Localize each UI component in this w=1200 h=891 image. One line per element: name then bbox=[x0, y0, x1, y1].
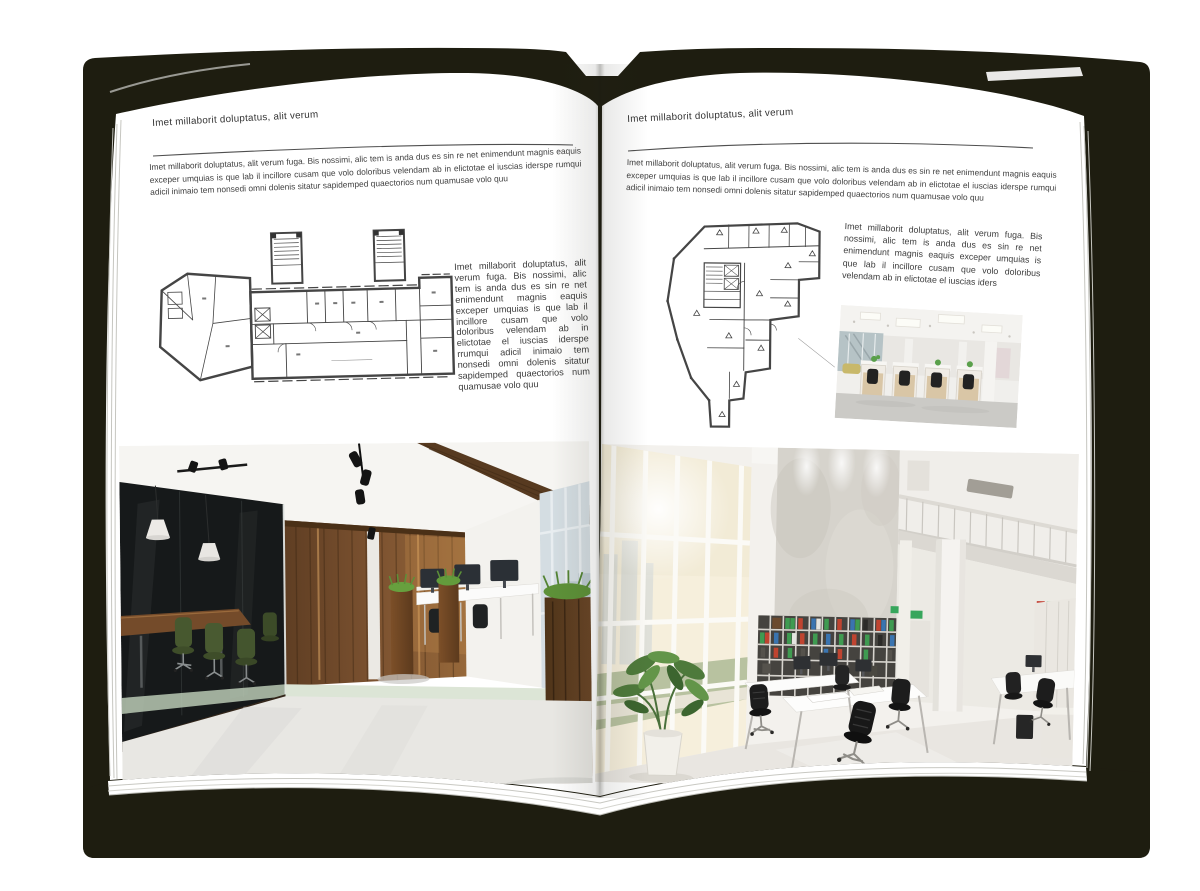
left-page-header: Imet millaborit doluptatus, alit verum bbox=[152, 101, 472, 129]
left-intro-paragraph: Imet millaborit doluptatus, alit verum f… bbox=[149, 144, 582, 198]
right-side-text: Imet millaborit doluptatus, alit verum f… bbox=[842, 220, 1043, 291]
right-intro-paragraph: Imet millaborit doluptatus, alit verum f… bbox=[626, 156, 1057, 207]
right-page-header: Imet millaborit doluptatus, alit verum bbox=[627, 100, 947, 125]
floorplan-left bbox=[152, 220, 459, 420]
floorplan-right bbox=[646, 218, 840, 432]
floorplan-right-drawing bbox=[646, 218, 840, 432]
left-side-column-text: Imet millaborit doluptatus, alit verum f… bbox=[454, 257, 590, 392]
right-header-rule bbox=[628, 143, 1033, 151]
photo-office-bright-interior bbox=[595, 444, 1079, 792]
book-mockup: Imet millaborit doluptatus, alit verum I… bbox=[0, 0, 1200, 891]
photo-office-small bbox=[835, 305, 1023, 428]
floorplan-left-drawing bbox=[152, 220, 459, 420]
photo-office-wood-interior bbox=[119, 441, 593, 788]
back-page-edge bbox=[986, 67, 1083, 81]
back-page-edge-left bbox=[110, 64, 250, 92]
